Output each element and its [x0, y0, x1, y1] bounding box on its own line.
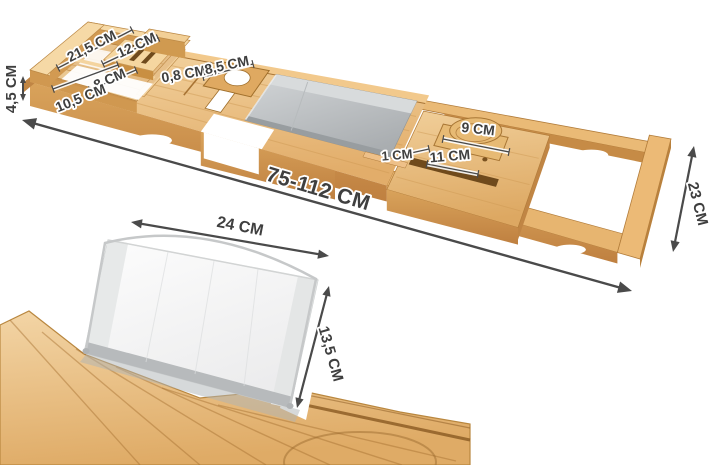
tablet-peg-hole	[482, 157, 487, 161]
panel-hinge	[83, 348, 90, 354]
dim-label-13-5cm: 13,5 CM	[315, 324, 347, 383]
dim-label-1cm: 1 CM	[381, 146, 413, 164]
dim-label-4-5cm: 4,5 CM	[3, 65, 20, 113]
panel-hinge	[287, 403, 294, 409]
detail-view	[0, 236, 470, 465]
front-rail-scallop-notch	[554, 245, 586, 255]
front-face-scallop-notch	[132, 134, 172, 146]
back-rail-scallop-notch	[574, 150, 608, 161]
dim-label-24cm: 24 CM	[215, 214, 265, 240]
dim-label-23cm: 23 CM	[684, 180, 711, 227]
diagram-canvas: 4,5 CM 21,5 CM 12 CM 8 CM 10,5 CM 0,8 CM…	[0, 0, 720, 465]
product-image: 4,5 CM 21,5 CM 12 CM 8 CM 10,5 CM 0,8 CM…	[0, 0, 720, 465]
